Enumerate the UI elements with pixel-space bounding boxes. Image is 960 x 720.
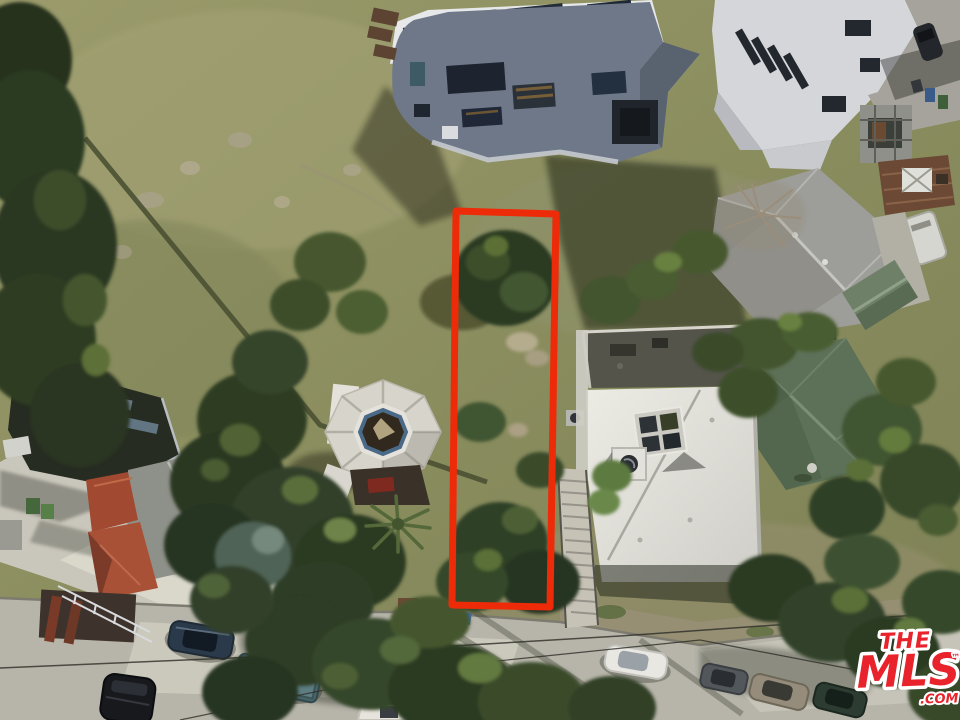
- brown-roof-deck: [878, 155, 955, 215]
- logo-com: .COM: [920, 691, 959, 707]
- scaffolding: [860, 105, 912, 163]
- bare-tree: [714, 179, 806, 251]
- aerial-photo-canvas: THE MLS ™ .COM: [0, 0, 960, 720]
- black-suv: [99, 673, 157, 720]
- logo-mls: MLS: [856, 644, 960, 699]
- aerial-photo: THE MLS ™ .COM: [0, 0, 960, 720]
- tree-bottom-left-pad: [190, 566, 274, 634]
- logo-tm: ™: [951, 653, 960, 663]
